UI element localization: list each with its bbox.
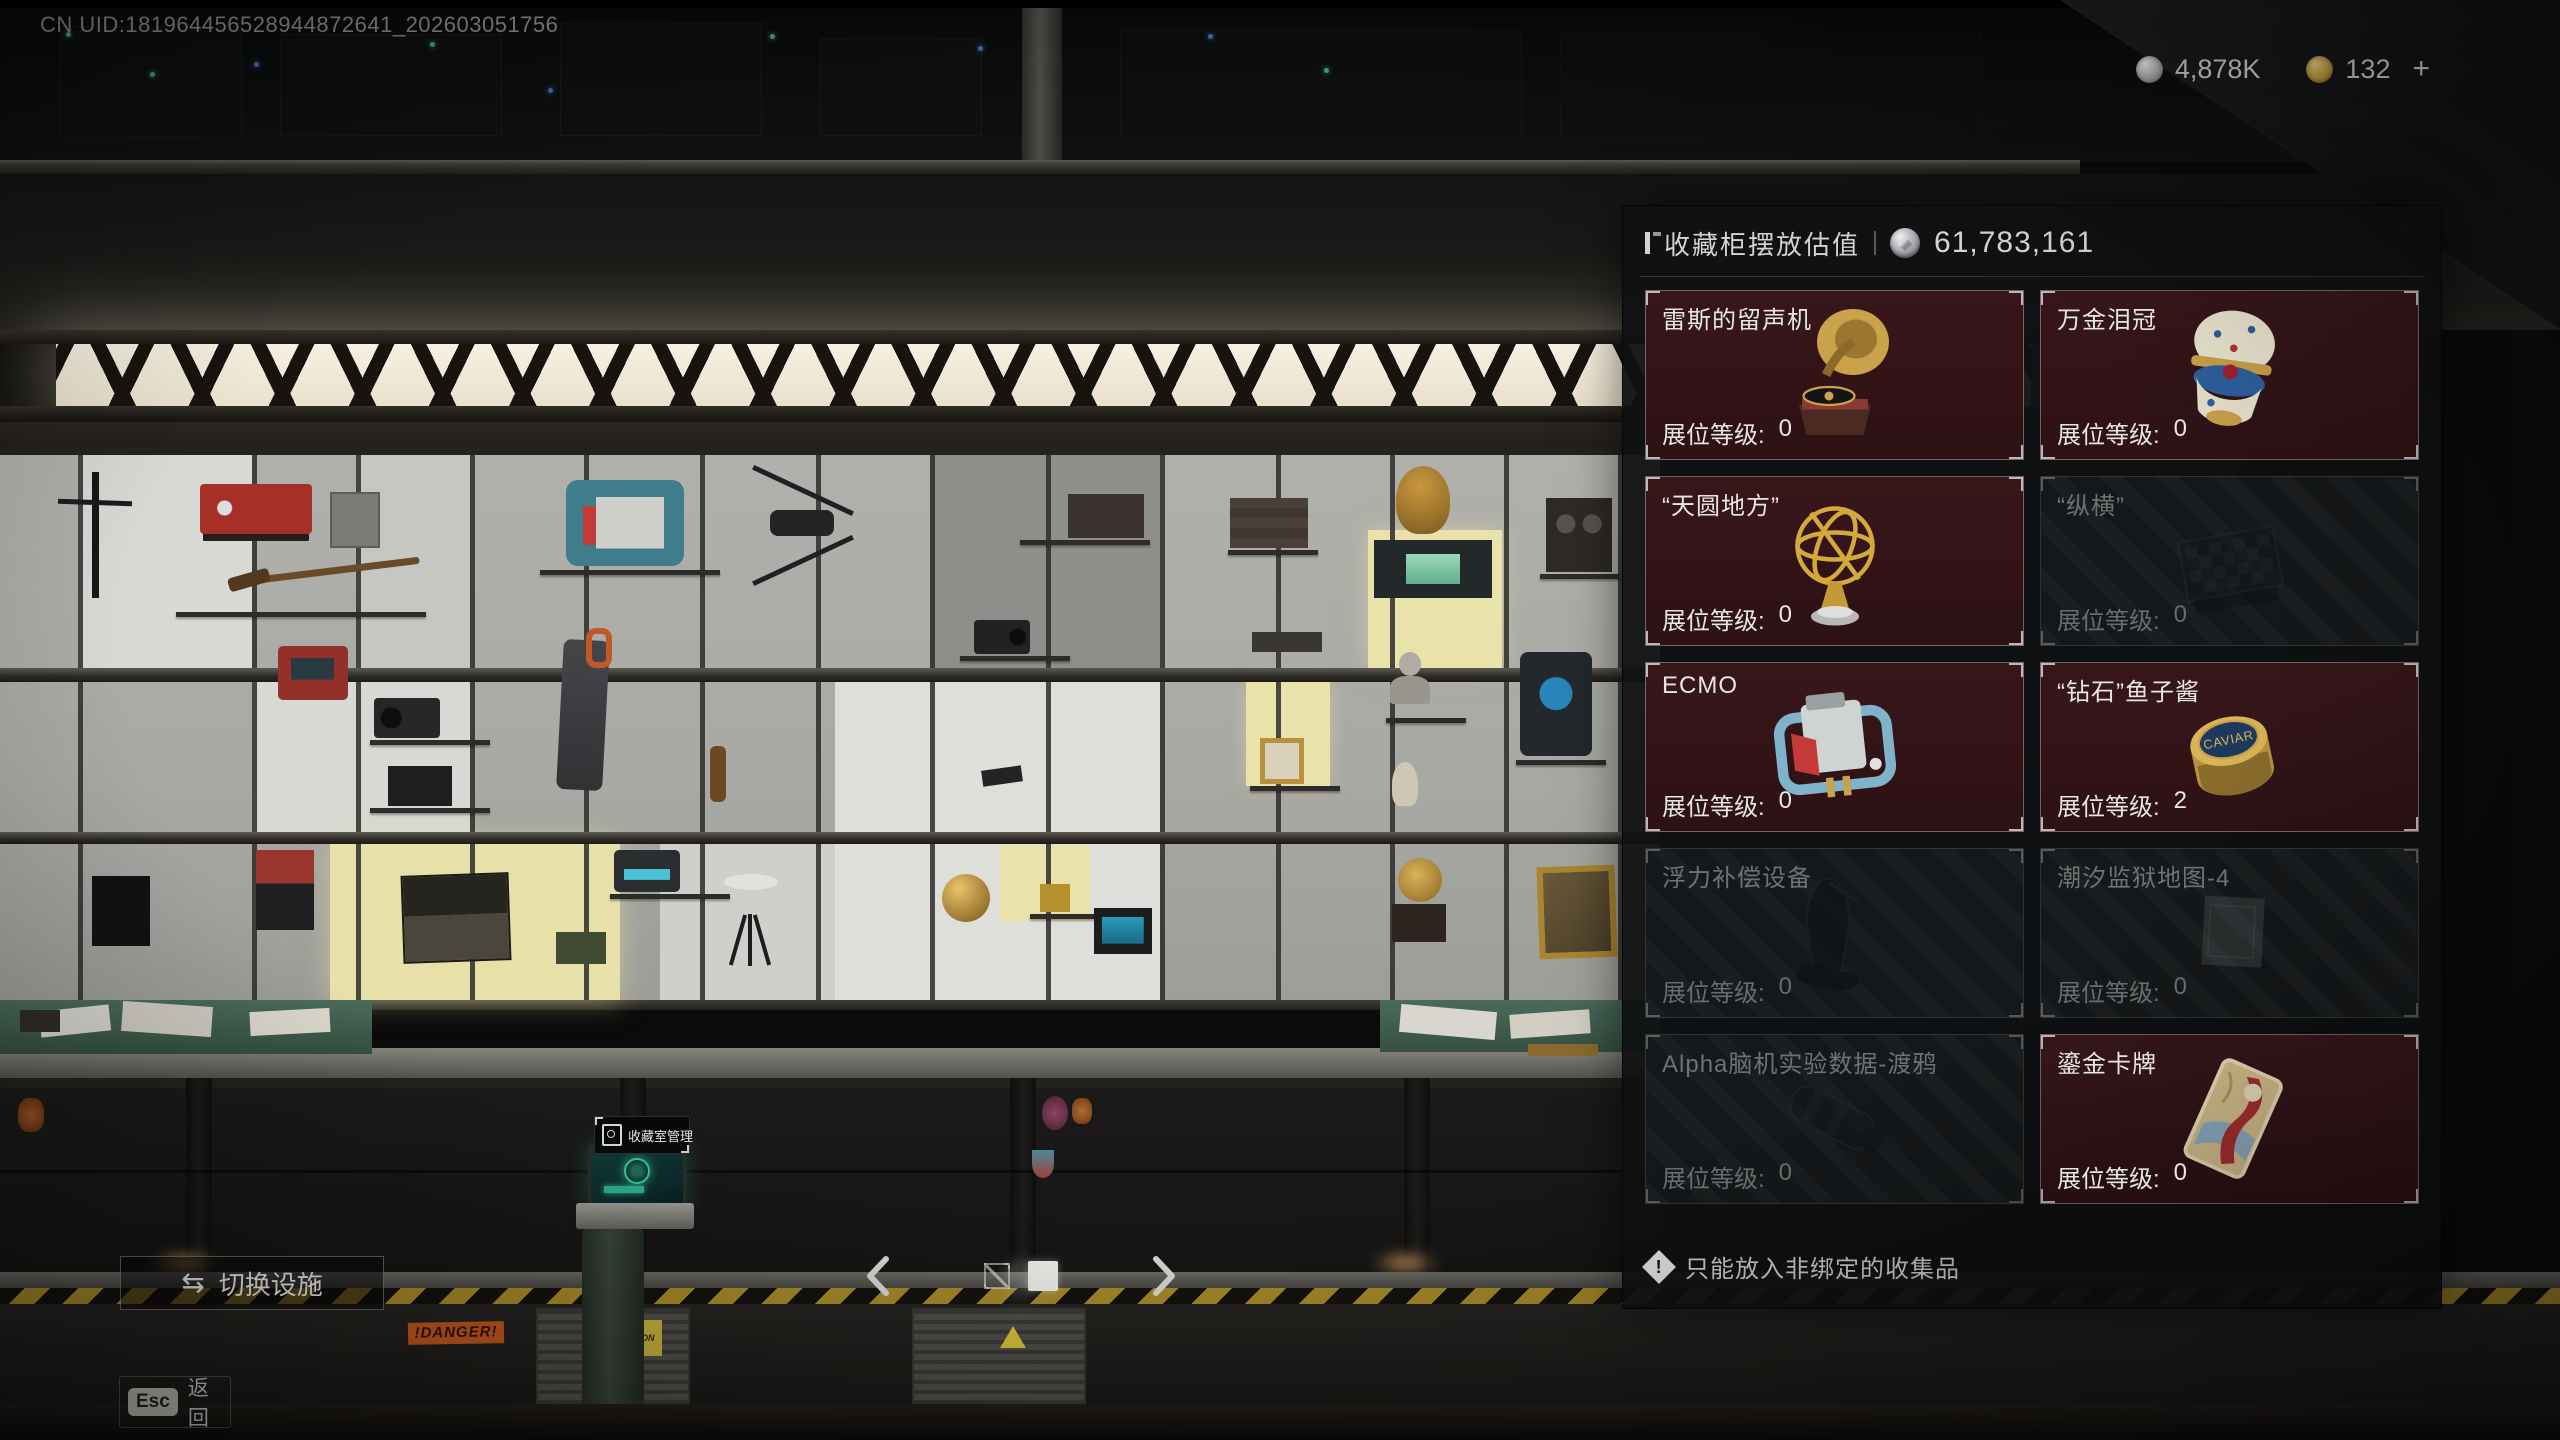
shelf-item-gold-box — [1040, 884, 1070, 912]
indicator-light — [548, 88, 553, 93]
item-level: 展位等级:0 — [1662, 1159, 1792, 1194]
shelf-item-camera — [374, 698, 440, 738]
shelf-item-gramophone-horn — [1398, 858, 1442, 902]
page-indicator-3[interactable] — [1008, 1263, 1034, 1289]
sub-shelf — [1386, 718, 1466, 723]
wall-top-edge — [0, 448, 1660, 455]
shelf-item-case — [1068, 494, 1144, 538]
switch-facility-button[interactable]: ⇆ 切换设施 — [120, 1256, 384, 1310]
item-title: 鎏金卡牌 — [2057, 1044, 2157, 1079]
collection-card-buoyancy[interactable]: 浮力补偿设备 展位等级:0 — [1645, 848, 2024, 1018]
collection-card-tear-crown-egg[interactable]: 万金泪冠 展位等级:0 — [2040, 290, 2419, 460]
prev-arrow-icon[interactable] — [856, 1253, 902, 1299]
panel-header: 收藏柜摆放估值 61,783,161 — [1645, 222, 2419, 264]
item-level: 展位等级:0 — [1662, 415, 1792, 450]
player-uid: CN UID:181964456528944872641_20260305175… — [40, 12, 558, 38]
sub-shelf — [370, 740, 490, 745]
frame-line — [700, 455, 705, 1000]
item-title: 万金泪冠 — [2057, 300, 2157, 335]
sub-shelf — [176, 612, 426, 617]
sub-shelf — [610, 894, 730, 899]
indicator-light — [1324, 68, 1329, 73]
footer-note-text: 只能放入非绑定的收集品 — [1685, 1249, 1960, 1284]
clipboard — [20, 1010, 60, 1032]
shelf-item-open-case — [400, 872, 511, 964]
sub-shelf — [370, 808, 490, 813]
indicator-light — [770, 34, 775, 39]
value-coin-icon — [1890, 228, 1920, 258]
terminal-emblem-icon — [624, 1158, 650, 1184]
collection-card-armillary[interactable]: “天圆地方” 展位等级:0 — [1645, 476, 2024, 646]
warning-diamond-icon: ! — [1642, 1250, 1676, 1284]
item-title: 雷斯的留声机 — [1662, 300, 1812, 335]
shelf-item-sci-device — [614, 850, 680, 892]
cabinet-seam — [0, 1170, 1660, 1173]
next-arrow-icon[interactable] — [1140, 1253, 1186, 1299]
ceiling-cabinet — [60, 26, 242, 138]
item-level: 展位等级:0 — [1662, 601, 1792, 636]
item-title: 潮汐监狱地图-4 — [2057, 858, 2230, 893]
frame-line — [1160, 455, 1165, 1000]
silver-currency: 4,878K — [2136, 54, 2261, 85]
shelf-item-monitor — [1094, 908, 1152, 954]
sub-shelf — [1540, 574, 1620, 579]
ceiling-cabinet — [1560, 32, 1982, 138]
item-title: ECMO — [1662, 672, 1738, 700]
shelf-item-red-machine — [200, 484, 312, 534]
collection-card-prison-map[interactable]: 潮汐监狱地图-4 展位等级:0 — [2040, 848, 2419, 1018]
frame-line — [1504, 455, 1509, 1000]
paper — [249, 1008, 330, 1036]
danger-sign: !DANGER! — [408, 1321, 504, 1345]
shelf-item-drone-arm — [752, 535, 854, 586]
frame-line — [930, 455, 935, 1000]
switch-facility-label: 切换设施 — [219, 1265, 323, 1302]
terminal-pillar — [582, 1228, 644, 1414]
panel-title: 收藏柜摆放估值 — [1664, 225, 1860, 262]
indicator-light — [150, 72, 155, 77]
shelf-item-figurine — [1392, 762, 1418, 806]
silver-coin-icon — [2136, 56, 2163, 83]
frame-line — [78, 455, 83, 1000]
item-title: 浮力补偿设备 — [1662, 858, 1812, 893]
ceiling-cabinet — [820, 38, 982, 136]
collection-card-chessboard[interactable]: “纵横” 展位等级:0 — [2040, 476, 2419, 646]
page-indicator-1[interactable] — [984, 1263, 1010, 1289]
ceiling-cabinet — [280, 34, 502, 136]
shelf-item-small-frame — [1260, 738, 1304, 784]
ceiling-cabinet — [560, 22, 762, 136]
terminal-keyboard — [576, 1203, 694, 1229]
cabinet-icon — [602, 1124, 622, 1146]
esc-keycap: Esc — [128, 1388, 178, 1416]
collection-card-gilded-card[interactable]: 鎏金卡牌 展位等级:0 — [2040, 1034, 2419, 1204]
screen: !DANGER! CAUTION 收藏室管理 CN UID:1819644565… — [0, 0, 2560, 1440]
shelf-item-bust-head — [1399, 652, 1421, 676]
shelf-item-picture-frame — [1536, 865, 1617, 960]
sub-shelf — [1250, 786, 1340, 791]
base-wall: !DANGER! CAUTION — [0, 1304, 2560, 1408]
sub-shelf — [1020, 540, 1150, 545]
item-level: 展位等级:0 — [1662, 973, 1792, 1008]
collection-card-alpha-data[interactable]: Alpha脑机实验数据-渡鸦 展位等级:0 — [1645, 1034, 2024, 1204]
collection-card-caviar[interactable]: CAVIAR “钻石”鱼子酱 展位等级:2 — [2040, 662, 2419, 832]
shelf-item-bust-shoulders — [1390, 676, 1430, 704]
ceiling-rail — [0, 160, 2080, 174]
terminal-tooltip[interactable]: 收藏室管理 — [594, 1116, 690, 1154]
shelf-item-blue-device — [1520, 652, 1592, 756]
shelf-item-crate — [1230, 498, 1308, 548]
decal-fish — [18, 1098, 44, 1132]
shelf-item-dark-unit — [388, 766, 452, 806]
page-indicators — [902, 1261, 1140, 1291]
item-title: “天圆地方” — [1662, 486, 1780, 521]
item-title: “钻石”鱼子酱 — [2057, 672, 2200, 707]
shelf-item-lit-display — [1374, 540, 1492, 598]
shelf-item-gramophone-base — [1392, 904, 1446, 942]
silver-amount: 4,878K — [2175, 54, 2261, 85]
terminal-tooltip-label: 收藏室管理 — [628, 1126, 693, 1145]
decal-badge — [1072, 1098, 1092, 1124]
warning-triangle-sign — [1000, 1326, 1026, 1348]
indicator-light — [1208, 34, 1213, 39]
item-level: 展位等级:0 — [2057, 415, 2187, 450]
shelf-item-panel — [330, 492, 380, 548]
shelf-item-bottle — [710, 746, 726, 802]
shelf-item-drone-arm — [752, 465, 854, 516]
decal-shell — [1042, 1096, 1068, 1130]
shelf-item-radio-unit — [256, 850, 314, 930]
shelf-item-speaker — [92, 876, 150, 946]
swap-arrows-icon: ⇆ — [181, 1269, 204, 1297]
esc-back-hint[interactable]: Esc 返回 — [119, 1376, 231, 1428]
item-level: 展位等级:0 — [1662, 787, 1792, 822]
frame-line — [816, 455, 821, 1000]
add-currency-button[interactable]: + — [2412, 52, 2430, 86]
gold-currency[interactable]: 132 + — [2306, 52, 2430, 86]
base-panel — [912, 1308, 1086, 1404]
terminal-progress-bar — [604, 1186, 644, 1193]
shelf-item-helicopter — [92, 472, 99, 598]
gold-coin-icon — [2306, 56, 2333, 83]
item-level: 展位等级:0 — [2057, 601, 2187, 636]
indicator-light — [254, 62, 259, 67]
collection-card-gramophone[interactable]: 雷斯的留声机 展位等级:0 — [1645, 290, 2024, 460]
item-title: Alpha脑机实验数据-渡鸦 — [1662, 1044, 1937, 1079]
shelf-item-vacuum-handle — [586, 628, 612, 668]
indicator-light — [430, 42, 435, 47]
wood-plank — [1528, 1044, 1598, 1056]
collection-grid: 雷斯的留声机 展位等级:0 万金 — [1645, 290, 2419, 1204]
sub-shelf — [960, 656, 1070, 661]
shelf-bar — [0, 832, 1660, 844]
display-page-switcher — [856, 1248, 1186, 1304]
item-title: “纵横” — [2057, 486, 2125, 521]
shelf-item-gold-sphere — [942, 874, 990, 922]
indicator-light — [978, 46, 983, 51]
sub-shelf — [540, 570, 720, 575]
display-wall — [0, 455, 1660, 1000]
shelf-item-camcorder — [974, 620, 1030, 654]
shelf-item-bronze-figure — [1396, 466, 1450, 534]
shelf-item-reel-recorder — [1546, 498, 1612, 572]
item-level: 展位等级:2 — [2057, 787, 2187, 822]
shelf-item-tripod-leg — [748, 914, 752, 966]
shaded-cell — [930, 455, 1160, 668]
ceiling-cabinet — [1120, 28, 1522, 140]
shelf-item-green-box — [556, 932, 606, 964]
back-label: 返回 — [188, 1372, 222, 1432]
shelf-item-generator — [566, 480, 684, 566]
total-value: 61,783,161 — [1934, 226, 2094, 260]
cabinet-wall — [0, 1078, 1660, 1280]
shelf-item-red-radio — [278, 646, 348, 700]
collection-card-ecmo[interactable]: ECMO 展位等级:0 — [1645, 662, 2024, 832]
collection-cabinet-panel: 收藏柜摆放估值 61,783,161 — [1622, 205, 2442, 1309]
item-level: 展位等级:0 — [2057, 973, 2187, 1008]
sub-shelf — [1030, 914, 1100, 919]
gold-amount: 132 — [2345, 54, 2390, 85]
shelf-item-plate — [724, 874, 778, 890]
sub-shelf — [1228, 550, 1318, 555]
item-level: 展位等级:0 — [2057, 1159, 2187, 1194]
decal-shield — [1032, 1150, 1054, 1178]
support-beam — [1022, 8, 1062, 174]
sub-shelf — [1516, 760, 1606, 765]
panel-footer-note: ! 只能放入非绑定的收集品 — [1647, 1249, 1960, 1284]
floor — [0, 1404, 2560, 1440]
header-divider — [1874, 231, 1876, 255]
shelf-item-drone-body — [770, 510, 834, 536]
shelf-item-wall-art — [1252, 632, 1322, 652]
paper — [121, 1001, 213, 1037]
header-marker — [1645, 232, 1650, 254]
header-underline — [1639, 276, 2425, 277]
currency-bar: 4,878K 132 + — [2136, 52, 2430, 86]
